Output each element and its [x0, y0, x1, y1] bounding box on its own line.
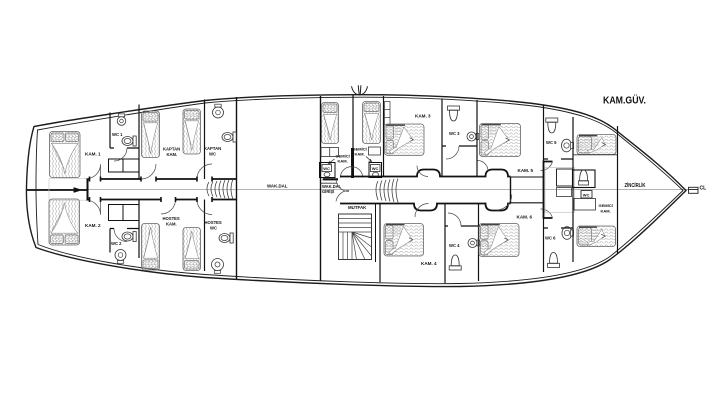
svg-text:WC: WC: [209, 152, 216, 157]
svg-text:KAPTAN: KAPTAN: [204, 146, 221, 151]
svg-text:KAM. 1: KAM. 1: [85, 152, 101, 157]
svg-text:KAM. 3: KAM. 3: [415, 114, 431, 119]
svg-text:MUTFAK: MUTFAK: [348, 205, 367, 210]
svg-text:GİRİŞİ: GİRİŞİ: [322, 189, 334, 194]
svg-text:KAM.GÜV.: KAM.GÜV.: [603, 94, 646, 107]
svg-text:WC: WC: [323, 166, 330, 171]
svg-text:WC: WC: [583, 192, 590, 197]
svg-text:KAM. 2: KAM. 2: [85, 223, 101, 228]
svg-text:KAM.: KAM.: [167, 152, 178, 157]
svg-text:WC: WC: [372, 166, 379, 171]
svg-text:WC 2: WC 2: [111, 241, 122, 246]
svg-text:KAM. 6: KAM. 6: [517, 215, 533, 220]
svg-text:WC 6: WC 6: [545, 236, 556, 241]
svg-text:GEMİCİ: GEMİCİ: [599, 203, 613, 208]
svg-text:KAM.: KAM.: [166, 222, 177, 227]
svg-text:CL: CL: [700, 185, 707, 191]
svg-text:WAK.DAL: WAK.DAL: [267, 184, 288, 189]
svg-text:KAM.: KAM.: [338, 159, 348, 164]
svg-text:WC 4: WC 4: [449, 243, 460, 248]
svg-text:WC 3: WC 3: [449, 131, 460, 136]
svg-text:WC 5: WC 5: [546, 140, 557, 145]
svg-text:KAM.: KAM.: [355, 152, 365, 157]
svg-text:KAM.: KAM.: [601, 209, 611, 214]
svg-text:KAM. 5: KAM. 5: [518, 168, 534, 173]
svg-text:KAM. 4: KAM. 4: [421, 261, 437, 266]
svg-text:WC: WC: [210, 226, 217, 231]
svg-text:WC 1: WC 1: [112, 132, 123, 137]
svg-text:HOSTES: HOSTES: [163, 216, 180, 221]
svg-text:ZİNCİRLİK: ZİNCİRLİK: [625, 182, 646, 189]
svg-text:HOSTES: HOSTES: [205, 220, 222, 225]
svg-text:KAPTAN: KAPTAN: [163, 147, 180, 152]
